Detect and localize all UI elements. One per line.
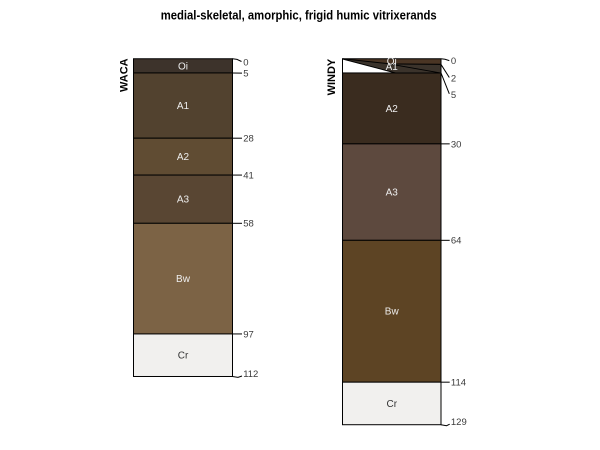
svg-text:A3: A3 [177,195,190,206]
svg-text:30: 30 [451,140,462,151]
svg-text:A2: A2 [177,152,190,163]
svg-text:129: 129 [451,417,467,428]
svg-text:0: 0 [451,56,456,67]
svg-text:64: 64 [451,236,462,247]
svg-text:114: 114 [451,378,466,389]
svg-text:Cr: Cr [178,351,189,362]
svg-text:112: 112 [243,369,258,380]
svg-text:97: 97 [243,329,254,340]
svg-text:A2: A2 [386,104,399,115]
svg-text:Bw: Bw [176,274,191,285]
svg-text:2: 2 [451,73,456,84]
svg-text:28: 28 [243,134,254,145]
svg-text:0: 0 [243,58,248,69]
svg-text:medial-skeletal, amorphic, fri: medial-skeletal, amorphic, frigid humic … [161,7,437,22]
svg-text:A1: A1 [177,101,190,112]
svg-text:58: 58 [243,219,254,230]
svg-text:Cr: Cr [386,399,397,410]
svg-text:A3: A3 [386,188,399,199]
svg-text:A1: A1 [386,62,399,73]
svg-text:Oi: Oi [178,61,188,72]
svg-text:WINDY: WINDY [326,58,338,95]
svg-text:5: 5 [243,69,248,80]
svg-text:5: 5 [451,90,456,101]
svg-text:WACA: WACA [119,58,131,92]
svg-text:Bw: Bw [385,307,400,318]
svg-text:41: 41 [243,171,254,182]
